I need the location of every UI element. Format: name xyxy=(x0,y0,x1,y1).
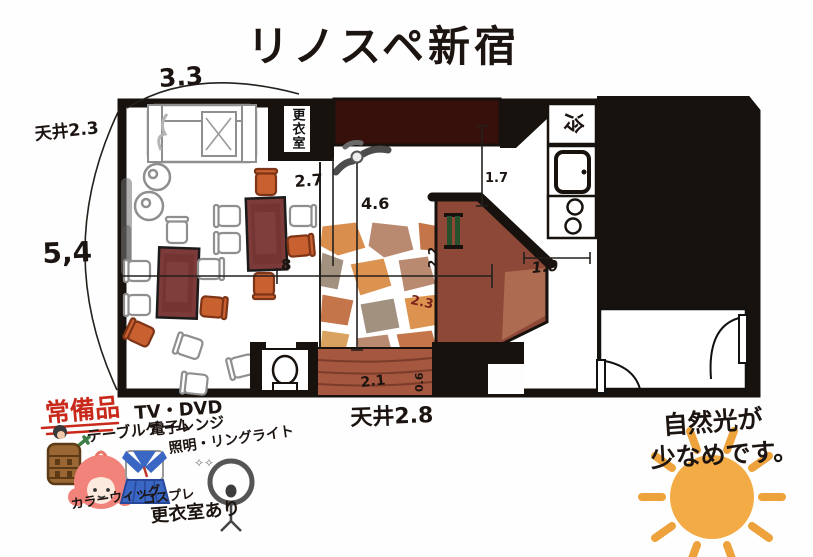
dim-counter-width: 2.2 xyxy=(427,247,439,268)
dim-kitchen-side: 1.7 xyxy=(485,172,508,185)
dim-corridor: 1.0 xyxy=(531,259,559,276)
sofa xyxy=(148,105,256,162)
dining-table-left xyxy=(157,247,199,318)
floor-plan-drawing xyxy=(0,0,813,557)
lower-black-block xyxy=(432,342,524,396)
door-leaf xyxy=(739,315,747,363)
toilet-icon xyxy=(273,356,297,384)
dim-mid-width: 8 xyxy=(281,258,291,273)
note-line2: 少なめです。 xyxy=(650,438,799,471)
back-room xyxy=(597,309,747,393)
note-line1: 自然光が xyxy=(662,406,764,438)
dim-left-height: 5,4 xyxy=(42,238,93,268)
dim-step-width: 2.1 xyxy=(360,373,386,390)
dim-ceiling-main: 天井2.8 xyxy=(350,405,434,430)
page-title: リノスペ新宿 xyxy=(247,26,520,68)
burner xyxy=(566,219,581,234)
amenities-heading: 常備品 xyxy=(44,394,121,425)
changing-room-label: 更衣室 xyxy=(284,106,310,152)
toilet-room xyxy=(250,340,318,396)
dim-top-width: 3.3 xyxy=(158,63,204,91)
dim-entry-depth: 2.7 xyxy=(294,172,323,190)
dark-band xyxy=(334,99,500,145)
dim-step-depth: 0.6 xyxy=(414,373,425,393)
dim-floor-length: 4.6 xyxy=(361,196,389,212)
burner xyxy=(568,200,583,215)
fridge-label: 冷 xyxy=(562,113,583,134)
door-leaf xyxy=(597,360,605,393)
hand-drawn-floorplan-page: リノスペ新宿 3.3 天井2.3 5,4 更衣室 冷 2.7 4.6 1.7 1… xyxy=(0,0,813,557)
sparkle-icon: ✧✧ xyxy=(194,457,214,469)
